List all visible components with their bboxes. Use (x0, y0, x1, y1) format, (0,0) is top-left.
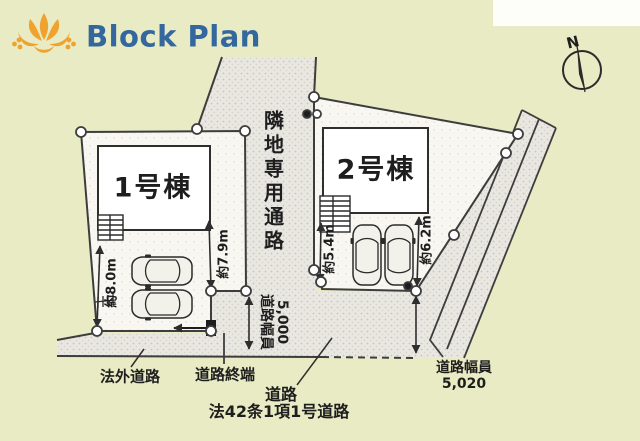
measurement-lot1-left: 約8.0m (106, 258, 121, 308)
front-road-width-label: 道路幅員 (258, 294, 274, 350)
gate-point-marker (404, 282, 412, 290)
building-1-label: 1号棟 (114, 172, 193, 203)
utility-pole-icon (303, 110, 311, 118)
passage-label: 隣地専用通路 (261, 110, 284, 254)
page-title: Block Plan (86, 20, 261, 53)
off-plan-road-label: 法外道路 (100, 368, 160, 385)
car-icon (132, 255, 192, 288)
road-statute-label: 法42条1項1号道路 (209, 403, 350, 421)
block-plan-page: Block Plan N 1号棟 2号棟 隣地専用通路 約8.0m 約7.9m … (0, 0, 640, 441)
east-road-width-value: 5,020 (436, 376, 492, 392)
scan-edge-patch (493, 0, 640, 26)
front-road-width: 道路幅員 5,000 (258, 294, 290, 350)
road-terminus-label: 道路終端 (195, 366, 255, 383)
front-road-width-value: 5,000 (274, 294, 290, 350)
car-icon (351, 225, 384, 285)
measurement-lot2-right: 約6.2m (421, 215, 436, 265)
site-plan-drawing (0, 0, 640, 441)
measurement-lot2-left: 約5.4m (324, 224, 339, 274)
car-icon (383, 225, 416, 285)
car-icon (132, 288, 192, 321)
stairs-icon-building-1 (98, 215, 123, 240)
building-2-label: 2号棟 (337, 154, 416, 185)
measurement-lot1-right: 約7.9m (218, 229, 233, 279)
east-road-width: 道路幅員 5,020 (436, 360, 492, 392)
east-road-width-label: 道路幅員 (436, 360, 492, 376)
